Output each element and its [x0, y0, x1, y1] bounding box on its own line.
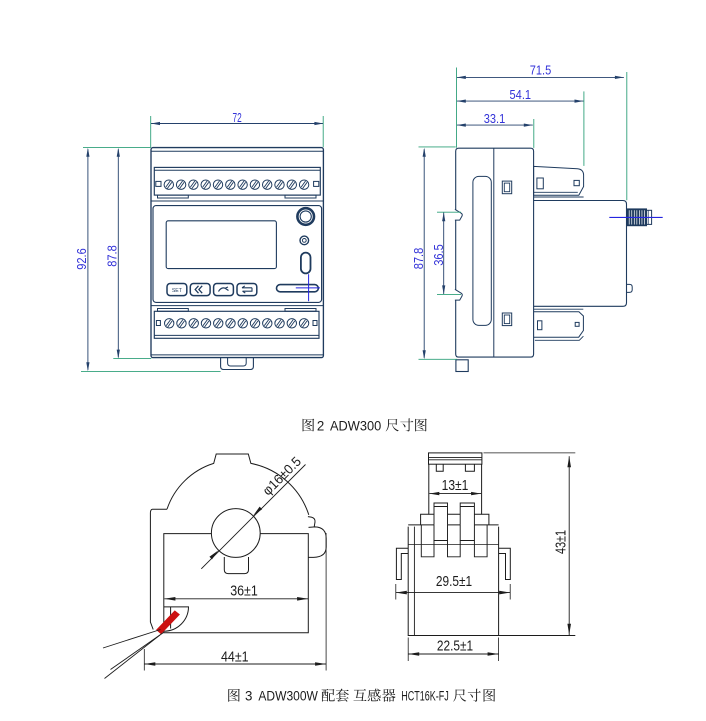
svg-text:36±1: 36±1: [230, 583, 258, 600]
svg-text:33.1: 33.1: [484, 112, 506, 126]
svg-text:44±1: 44±1: [221, 648, 249, 665]
svg-text:71.5: 71.5: [530, 64, 552, 78]
svg-text:92.6: 92.6: [75, 248, 89, 270]
svg-text:22.5±1: 22.5±1: [437, 638, 473, 655]
svg-text:3: 3: [245, 689, 253, 705]
svg-text:87.8: 87.8: [106, 245, 120, 267]
svg-text:87.8: 87.8: [412, 248, 426, 270]
svg-text:72: 72: [233, 111, 242, 125]
svg-text:43±1: 43±1: [553, 530, 570, 554]
svg-text:ADW300: ADW300: [330, 418, 381, 434]
svg-text:SET: SET: [172, 288, 183, 294]
svg-text:29.5±1: 29.5±1: [436, 573, 472, 590]
svg-text:13±1: 13±1: [442, 477, 469, 494]
svg-text:2: 2: [317, 418, 325, 434]
svg-text:HCT16K-FJ: HCT16K-FJ: [401, 689, 449, 705]
svg-text:36.5: 36.5: [432, 244, 446, 266]
svg-text:54.1: 54.1: [510, 88, 532, 102]
svg-text:ADW300W: ADW300W: [258, 689, 318, 705]
